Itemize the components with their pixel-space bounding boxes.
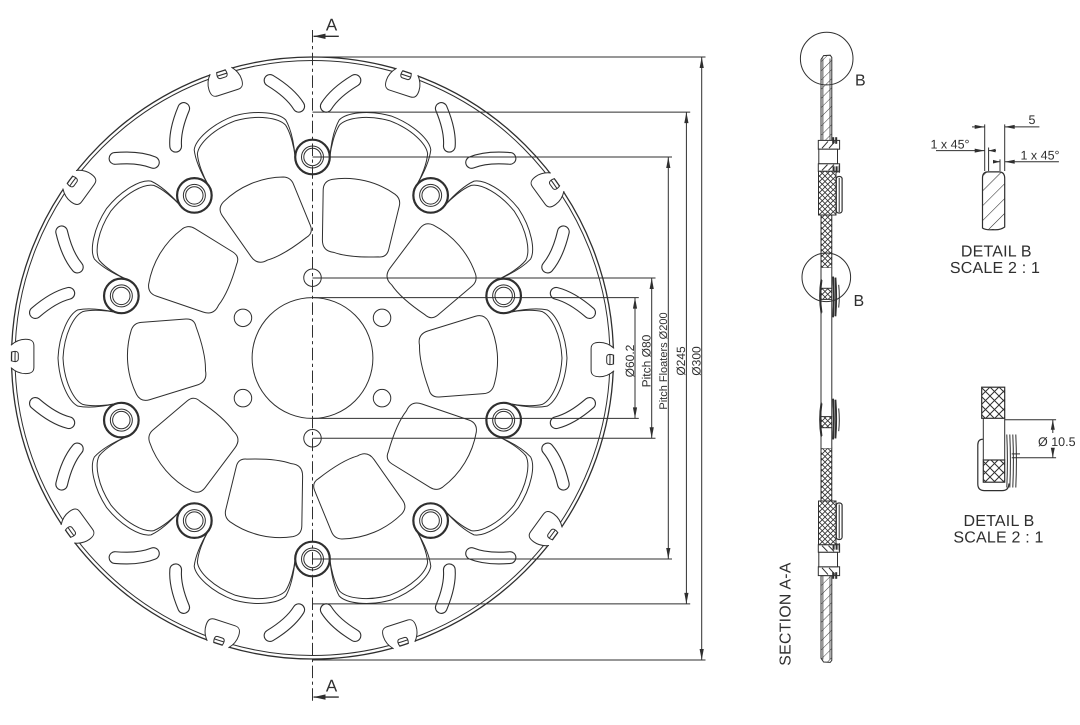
svg-text:DETAIL B: DETAIL B	[961, 244, 1032, 261]
svg-text:1 x 45°: 1 x 45°	[930, 138, 969, 152]
svg-text:Ø245: Ø245	[674, 346, 688, 376]
svg-text:1 x 45°: 1 x 45°	[1020, 149, 1059, 163]
svg-text:Ø300: Ø300	[690, 346, 704, 376]
svg-text:B: B	[854, 293, 865, 310]
svg-text:Pitch Ø80: Pitch Ø80	[640, 334, 654, 387]
svg-text:SECTION A-A: SECTION A-A	[778, 562, 795, 666]
svg-text:SCALE 2 : 1: SCALE 2 : 1	[953, 529, 1043, 546]
svg-text:Pitch Floaters Ø200: Pitch Floaters Ø200	[658, 312, 670, 409]
svg-text:A: A	[326, 16, 338, 35]
svg-text:Ø 10.5: Ø 10.5	[1038, 435, 1076, 449]
svg-text:5: 5	[1029, 113, 1036, 127]
svg-text:Ø60.2: Ø60.2	[623, 344, 637, 377]
svg-text:SCALE 2 : 1: SCALE 2 : 1	[950, 260, 1040, 277]
svg-text:B: B	[855, 73, 866, 90]
svg-text:A: A	[326, 677, 338, 696]
svg-text:DETAIL B: DETAIL B	[964, 513, 1035, 530]
